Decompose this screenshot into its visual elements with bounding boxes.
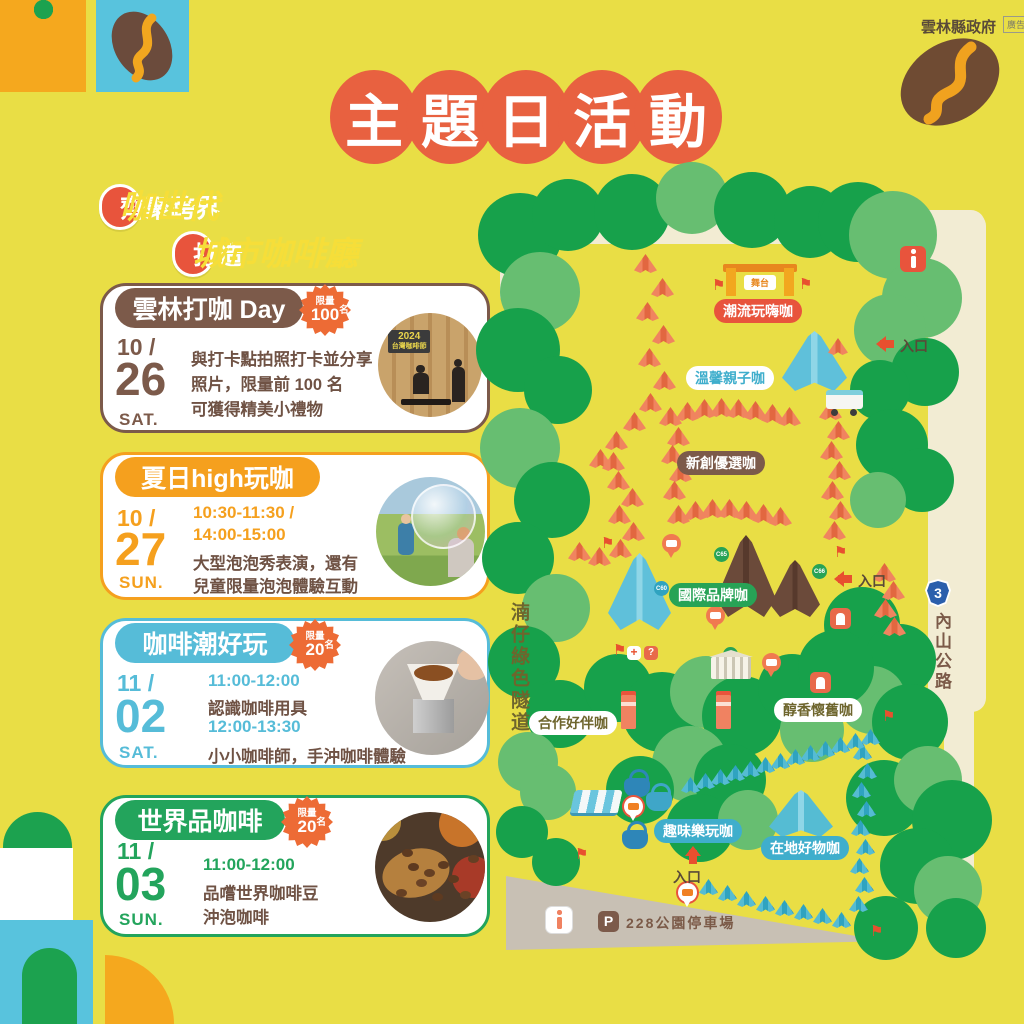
- map-area-label-startup: 新創優選咖: [677, 451, 765, 475]
- tree: [532, 838, 580, 886]
- limit-count: 20名: [306, 641, 325, 658]
- camera-glyph: [682, 889, 693, 896]
- event-title-pill: 世界品咖啡: [115, 800, 285, 840]
- vendor-tent-id: C01: [653, 246, 667, 260]
- vendor-tent: C31: [778, 407, 801, 426]
- poster: 雲林縣政府廣告 主題日活動 齊聚跨界 咖世代 打造 城市咖啡廳 雲林打咖 Day…: [0, 0, 1024, 1024]
- vendor-tent: C38: [684, 501, 707, 520]
- person-glyph: [911, 256, 916, 268]
- vendor-tent: C14: [608, 505, 631, 524]
- map-area-label-family: 溫馨親子咖: [686, 366, 774, 390]
- map-area-label-intl: 國際品牌咖: [669, 583, 757, 607]
- vendor-tent: A02: [718, 885, 737, 901]
- limit-count: 100名: [311, 306, 339, 323]
- camera-glyph: [666, 540, 677, 547]
- photo-silhouette: [452, 367, 466, 402]
- event-title-pill: 咖啡潮好玩: [115, 623, 295, 663]
- vendor-tent-id: C13: [640, 480, 654, 494]
- person-glyph: [557, 917, 562, 929]
- truck-wheel: [850, 409, 857, 416]
- limit-burst: 限量100名: [299, 284, 351, 336]
- vendor-tent: A11: [850, 858, 869, 874]
- vendor-tent: C12: [607, 471, 630, 490]
- limit-unit: 名: [316, 818, 326, 828]
- camera-pin-icon: [662, 534, 681, 553]
- vendor-tent: C18: [568, 542, 591, 561]
- vendor-tent-id: C04: [671, 317, 685, 331]
- food-truck-icon: [826, 390, 863, 416]
- vendor-tent: [828, 338, 848, 355]
- photo-kid: [401, 514, 411, 524]
- photo-spoon: [377, 842, 455, 905]
- vendor-tent: A04: [756, 896, 775, 912]
- vendor-tent: C08: [623, 412, 646, 431]
- vendor-tent-id: C02: [670, 270, 684, 284]
- info-booth-icon: [810, 672, 831, 693]
- entrance-arrow-icon: [685, 840, 701, 866]
- picnic-basket: [622, 830, 648, 849]
- vendor-tent-id: C41: [754, 493, 768, 507]
- restroom-icon: [900, 246, 926, 272]
- arrow-tip: [868, 336, 886, 352]
- camera-glyph: [628, 803, 639, 810]
- vendor-tent: C06: [653, 371, 676, 390]
- parking-icon: P: [598, 911, 619, 932]
- photo-silhouette: [416, 365, 424, 373]
- vendor-tent-id: C06: [672, 363, 686, 377]
- info-question-icon: ?: [644, 646, 658, 660]
- right-road-name: 內山公路: [929, 612, 954, 692]
- vendor-tent: C47: [828, 461, 851, 480]
- pavilion-building: [711, 657, 751, 679]
- photo-coffee-grounds: [414, 665, 453, 681]
- route-number: 3: [927, 581, 949, 605]
- vendor-tent: C45: [827, 421, 850, 440]
- vendor-tent-id: A11: [866, 859, 880, 873]
- vendor-tent-id: C30: [780, 396, 794, 410]
- park-map: 舞台 + ? C68 A31 3 湳仔綠色隧道 內山公路 P 228公園停車場: [0, 0, 1024, 1024]
- flag-icon: ⚑: [613, 643, 626, 658]
- arrow-tip: [685, 838, 701, 856]
- photo-bench: [401, 399, 451, 404]
- photo-bowl: [452, 856, 485, 898]
- limit-count: 20名: [298, 818, 317, 835]
- camera-pin-icon: [762, 653, 781, 672]
- map-area-label-local: 在地好物咖: [761, 836, 849, 860]
- tree: [850, 472, 906, 528]
- vendor-tent: C15: [622, 522, 645, 541]
- limit-burst: 限量20名: [289, 619, 341, 671]
- vendor-tent: A03: [737, 891, 756, 907]
- booth-id-badge: C60: [654, 581, 669, 596]
- photo-bowl: [439, 812, 485, 847]
- vendor-tent: C09: [605, 431, 628, 450]
- camera-glyph: [766, 659, 777, 666]
- event-photo: 2024台灣咖啡節: [378, 313, 482, 417]
- vendor-tent-id: C29: [763, 393, 777, 407]
- truck-wheel: [831, 409, 838, 416]
- flag-icon: ⚑: [870, 924, 883, 939]
- limit-burst: 限量20名: [281, 796, 333, 848]
- entrance-label: 入口: [900, 336, 928, 356]
- event-photo: [375, 641, 489, 755]
- entrance-arrow-icon: [828, 571, 854, 587]
- truck-body: [826, 390, 863, 409]
- vendor-tent-id: C43: [788, 499, 802, 513]
- photo-silhouette: [413, 373, 429, 394]
- vendor-tent: C05: [638, 348, 661, 367]
- photo-silhouette: [454, 359, 462, 367]
- vendor-tent: A01: [699, 879, 718, 895]
- photo-sign: 2024台灣咖啡節: [388, 330, 430, 353]
- stage-label: 舞台: [744, 275, 776, 290]
- map-area-label-nostalgia: 醇香懷舊咖: [774, 698, 862, 722]
- vendor-tent-id: C42: [771, 496, 785, 510]
- restroom-icon: [546, 907, 572, 933]
- deco-window: [12, 858, 60, 902]
- vendor-tent: A07: [813, 908, 832, 924]
- canopy-tent: [569, 790, 623, 816]
- entrance-label: 入口: [858, 571, 886, 591]
- vendor-tent: A24: [771, 753, 790, 769]
- flag-icon: ⚑: [882, 709, 895, 724]
- photo-kid: [398, 523, 414, 556]
- vendor-tent: A10: [855, 877, 874, 893]
- flag-icon: ⚑: [575, 847, 588, 862]
- vendor-tent-id: C28: [746, 391, 760, 405]
- photo-cup: [413, 699, 454, 733]
- photo-bowl: [375, 812, 401, 841]
- vendor-tent-id: C18: [587, 534, 601, 548]
- vendor-tent: C35: [663, 481, 686, 500]
- camera-glyph: [710, 612, 721, 619]
- event-photo: [376, 477, 485, 586]
- camera-pin-icon: [624, 797, 643, 816]
- stage: 舞台: [723, 258, 797, 298]
- picnic-basket: [646, 792, 672, 811]
- flag-icon: ⚑: [834, 545, 847, 560]
- vendor-tent: C07: [639, 393, 662, 412]
- vendor-tent: A06: [794, 904, 813, 920]
- stage-column: [784, 268, 794, 296]
- vendor-tent: A08: [832, 912, 851, 928]
- vendor-tent: C03: [636, 302, 659, 321]
- vendor-tent: C13: [621, 488, 644, 507]
- vendor-tent: C25: [676, 402, 699, 421]
- vendor-tent-id: C40: [737, 491, 751, 505]
- vendor-tent-id: C32: [686, 419, 700, 433]
- deco-arch-door: [22, 948, 77, 1024]
- photo-hand: [457, 648, 489, 680]
- vendor-tent: A05: [775, 900, 794, 916]
- event-title-pill: 雲林打咖 Day: [115, 288, 303, 328]
- vendor-tent-id: C31: [797, 399, 811, 413]
- vendor-tent-id: C27: [729, 390, 743, 404]
- vendor-tent: C01: [634, 254, 657, 273]
- photo-bubble: [411, 484, 476, 549]
- entrance-label: 入口: [673, 867, 701, 887]
- left-road-name: 湳仔綠色隧道: [505, 602, 532, 734]
- limit-unit: 名: [324, 641, 334, 651]
- tree: [926, 898, 986, 958]
- vendor-tent: A12: [856, 839, 875, 855]
- first-aid-icon: +: [627, 646, 641, 660]
- vendor-tent-id: C12: [626, 463, 640, 477]
- entrance-arrow-icon: [870, 336, 896, 352]
- map-area-label-coop: 合作好伴咖: [529, 711, 617, 735]
- arrow-tip: [826, 571, 844, 587]
- booth-id-badge: C66: [812, 564, 827, 579]
- photo-beans: [408, 863, 419, 871]
- vendor-tent: A19: [846, 733, 865, 749]
- vendor-tent: C49: [829, 501, 852, 520]
- event-title-pill: 夏日high玩咖: [115, 457, 320, 497]
- camera-pin-icon: [706, 606, 725, 625]
- booth-id-badge: C65: [714, 547, 729, 562]
- map-area-label-trend: 潮流玩嗨咖: [714, 299, 802, 323]
- info-booth-icon: [830, 608, 851, 629]
- vendor-tent: C32: [667, 427, 690, 446]
- event-photo: [375, 812, 485, 922]
- vendor-tent-id: C64: [902, 609, 916, 623]
- vendor-tent-id: C62: [901, 573, 915, 587]
- big-tent: [769, 790, 833, 837]
- flag-icon: ⚑: [712, 278, 725, 293]
- vendor-tent: C04: [652, 325, 675, 344]
- stage-column: [726, 268, 736, 296]
- tree: [798, 630, 874, 706]
- vendor-tent: C48: [821, 481, 844, 500]
- vendor-tent: C02: [651, 278, 674, 297]
- flag-icon: ⚑: [799, 277, 812, 292]
- vendor-tent-id: C61: [892, 555, 906, 569]
- vendor-tent: C43: [769, 507, 792, 526]
- vendor-tent: C46: [820, 441, 843, 460]
- flag-icon: ⚑: [601, 536, 614, 551]
- vendor-tent-id: C15: [641, 514, 655, 528]
- parking-label: 228公園停車場: [626, 913, 735, 933]
- vendor-tent: C50: [823, 521, 846, 540]
